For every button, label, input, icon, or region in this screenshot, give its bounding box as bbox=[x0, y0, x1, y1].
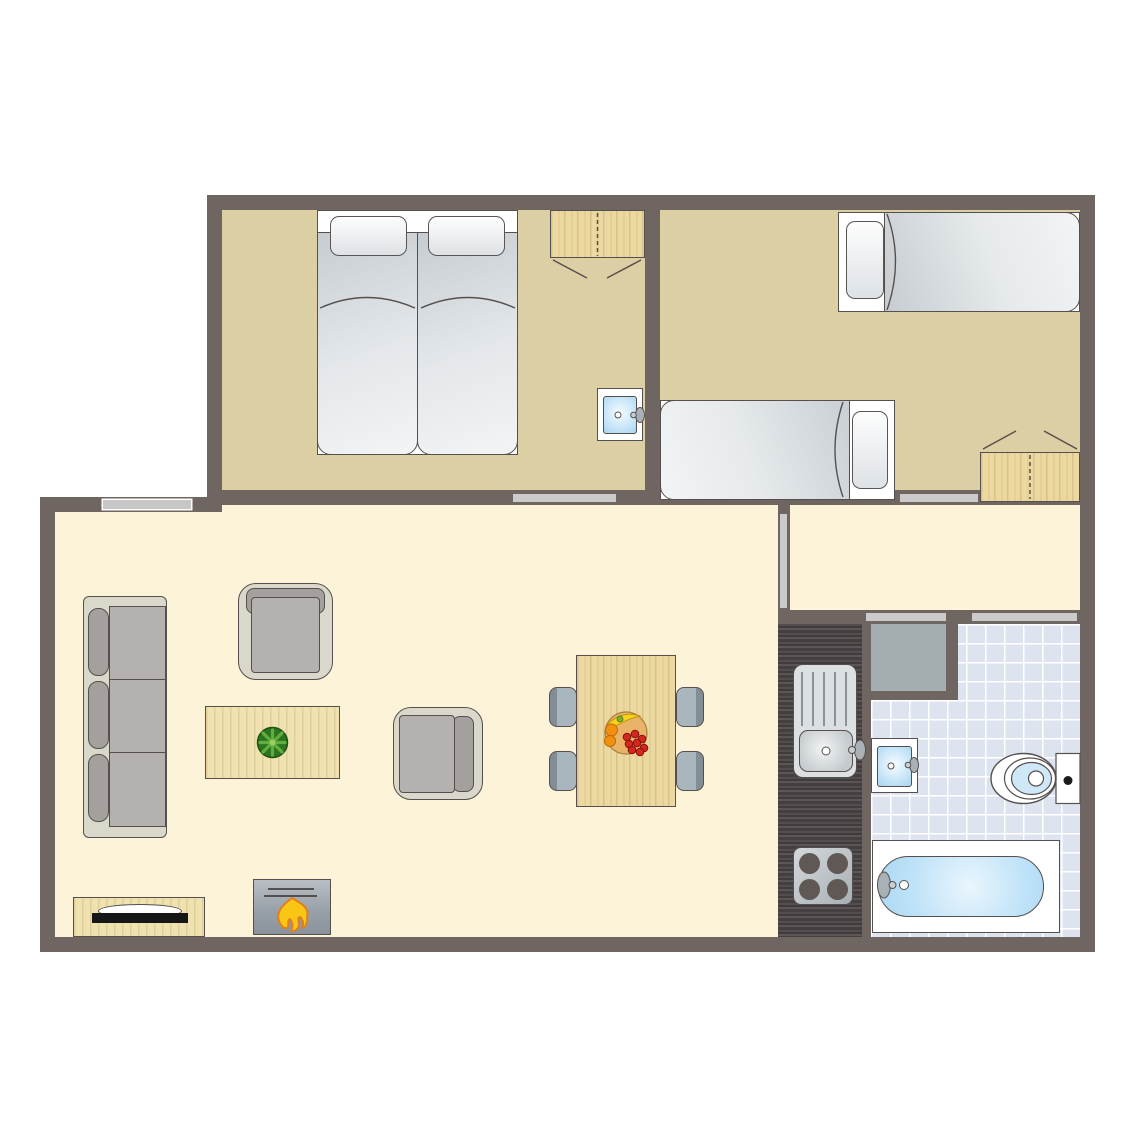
pillow bbox=[330, 216, 407, 256]
door-living-hall bbox=[780, 514, 787, 608]
washbasin-bath bbox=[877, 746, 912, 787]
double-bed-blanket-left bbox=[317, 232, 418, 455]
armchair-right-seat bbox=[399, 715, 455, 793]
door-bathroom bbox=[972, 613, 1077, 621]
washbasin-bedroom bbox=[603, 396, 637, 434]
bathtub bbox=[878, 856, 1044, 917]
dining-chair bbox=[676, 751, 704, 791]
door-bedroom-double bbox=[513, 494, 616, 502]
sink-basin bbox=[799, 730, 853, 772]
sofa-back-pillow bbox=[88, 608, 109, 676]
sofa-seat-divider bbox=[110, 679, 165, 680]
wall-right bbox=[1080, 195, 1095, 952]
armchair-right-back bbox=[452, 716, 474, 792]
burner bbox=[799, 879, 820, 900]
dining-chair bbox=[549, 751, 577, 791]
wall-bedroom-divider bbox=[645, 210, 660, 505]
armchair-top-seat bbox=[251, 597, 320, 673]
closet-floor bbox=[871, 624, 946, 691]
wardrobe-bedroom-twin bbox=[980, 452, 1080, 502]
wall-closet-right bbox=[946, 624, 958, 700]
sofa-back-pillow bbox=[88, 681, 109, 749]
burner bbox=[799, 853, 820, 874]
pillow bbox=[852, 411, 888, 489]
wall-bath-left bbox=[862, 624, 871, 937]
door-bedroom-twin bbox=[900, 494, 978, 502]
sofa-seat-divider bbox=[110, 752, 165, 753]
pillow bbox=[846, 221, 884, 299]
double-bed-blanket-right bbox=[417, 232, 518, 455]
coffee-table bbox=[205, 706, 340, 779]
burner bbox=[827, 879, 848, 900]
dining-chair bbox=[549, 687, 577, 727]
wall-closet-bottom bbox=[871, 691, 958, 700]
wall-left-lower bbox=[40, 497, 55, 952]
single-bed-bottom-blanket bbox=[660, 400, 850, 500]
wall-bottom bbox=[40, 937, 1095, 952]
door-closet bbox=[866, 613, 946, 621]
dining-table bbox=[576, 655, 676, 807]
hallway-floor bbox=[790, 505, 1080, 610]
tv-bar bbox=[92, 913, 188, 923]
burner bbox=[827, 853, 848, 874]
wardrobe-bedroom-double bbox=[550, 210, 645, 258]
pillow bbox=[428, 216, 505, 256]
dining-chair bbox=[676, 687, 704, 727]
wall-left-upper bbox=[207, 195, 222, 505]
window-living bbox=[103, 500, 191, 509]
floor-plan bbox=[0, 0, 1145, 1145]
single-bed-top-blanket bbox=[884, 212, 1080, 312]
sofa-back-pillow bbox=[88, 754, 109, 822]
wall-top bbox=[207, 195, 1095, 210]
fireplace bbox=[253, 879, 331, 935]
sofa-seats bbox=[109, 606, 166, 827]
